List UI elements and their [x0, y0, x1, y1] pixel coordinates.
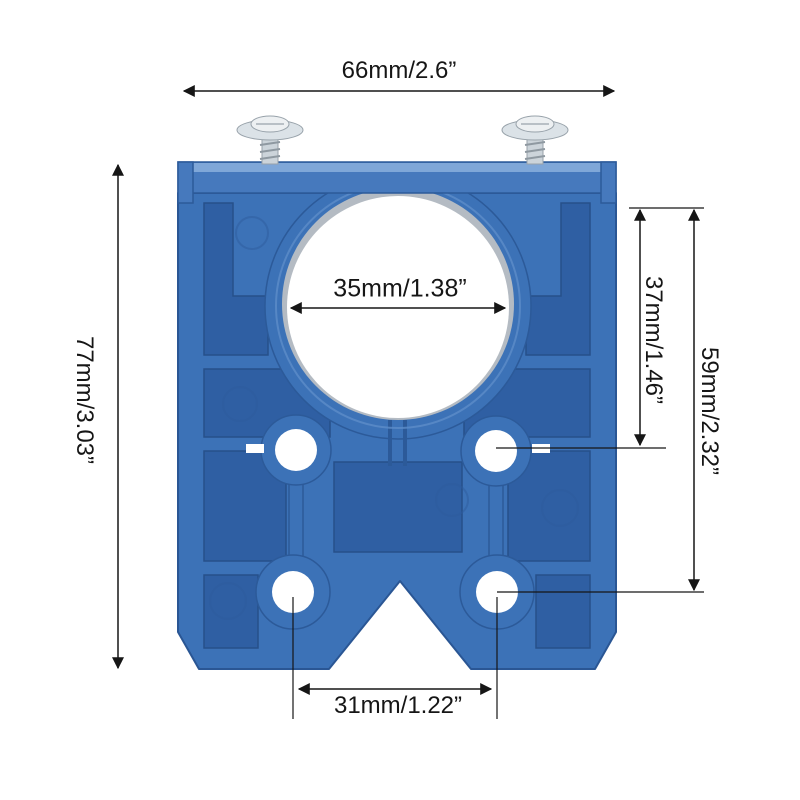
hinge-jig [178, 116, 616, 669]
mounting-screw-left [237, 116, 303, 164]
diagram-canvas [0, 0, 800, 800]
mounting-screw-right [502, 116, 568, 164]
top-bar-endcap-left [178, 162, 193, 203]
dim-bore-label: 35mm/1.38” [333, 275, 466, 304]
dim-59-label: 59mm/2.32” [695, 347, 723, 475]
dim-spacing-label: 31mm/1.22” [334, 692, 462, 720]
dim-37-label: 37mm/1.46” [639, 276, 667, 404]
rib-right [489, 480, 503, 558]
top-bar-endcap-right [601, 162, 616, 203]
guide-hole-upper-left [275, 429, 317, 471]
guide-hole-upper-right [475, 430, 517, 472]
dim-height-label: 77mm/3.03” [70, 336, 98, 464]
top-bar-bevel [180, 163, 614, 172]
hinge-jig-diagram: 66mm/2.6” 77mm/3.03” 35mm/1.38” 37mm/1.4… [0, 0, 800, 800]
dim-width-label: 66mm/2.6” [342, 57, 457, 85]
rib-left [289, 478, 303, 558]
bore-hole [287, 196, 509, 418]
side-slot-left [246, 444, 264, 453]
